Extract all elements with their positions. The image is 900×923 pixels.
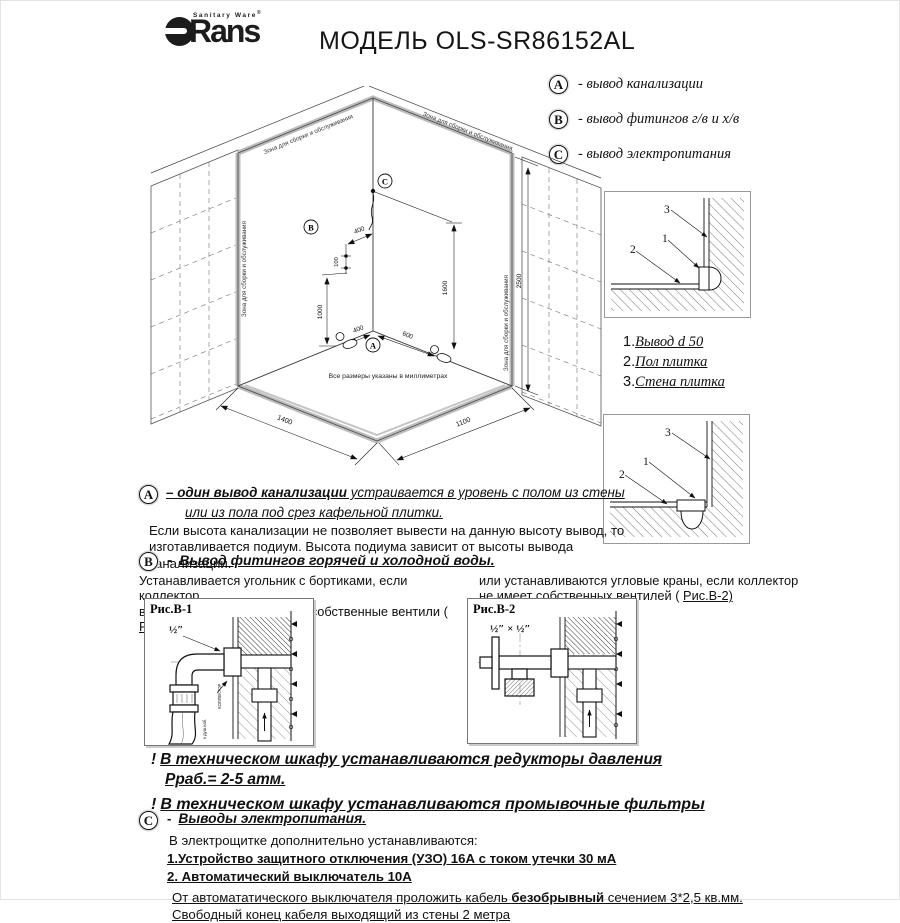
installation-sheet: Rans Sanitary Ware® МОДЕЛЬ OLS-SR86152AL… — [0, 0, 900, 900]
section-c-title: Выводы электропитания. — [178, 811, 366, 828]
fig-b2-reference: Рис.В-2) — [683, 588, 733, 603]
warning-reducers: !В техническом шкафу устанавливаются ред… — [151, 751, 705, 789]
list-item: 1. Вывод d 50 — [623, 334, 725, 351]
figure-b1-caption: Рис.В-1 — [150, 602, 192, 616]
page-title: МОДЕЛЬ OLS-SR86152AL — [319, 27, 635, 56]
units-note: Все размеры указаны в миллиметрах — [329, 373, 448, 380]
section-c-cable-note: От автомататического выключателя проложи… — [172, 890, 819, 906]
size-label: ½″ — [169, 624, 183, 636]
callout-3: 3 — [665, 427, 671, 439]
figure-b2-caption: Рис.В-2 — [473, 602, 515, 616]
registered-mark: ® — [257, 10, 261, 16]
callout-1: 1 — [662, 233, 668, 245]
brand-subtitle: Sanitary Ware® — [193, 10, 261, 19]
callout-2: 2 — [619, 469, 625, 481]
figure-b1-elbow-fitting: Рис.В-1 — [144, 598, 314, 746]
collector-label: КОЛЛЕКТОР — [217, 683, 222, 709]
detail-drain-from-wall: 3 1 2 — [604, 191, 751, 318]
warnings: !В техническом шкафу устанавливаются ред… — [151, 751, 705, 814]
orans-logo-o-icon — [165, 17, 194, 46]
warning-pressure-value: Рраб.= 2-5 атм. — [165, 771, 705, 789]
orans-logo: Rans Sanitary Ware® — [165, 17, 259, 51]
zone-label-right-wall: Зона для сборки и обслуживания — [503, 275, 510, 371]
zone-label-left-wall: Зона для сборки и обслуживания — [241, 221, 248, 317]
hose-label: к душ.каб. — [202, 719, 207, 739]
section-a-line2: или из пола под срез кафельной плитки. — [185, 505, 639, 521]
section-c-item-1: 1.Устройство защитного отключения (УЗО) … — [167, 851, 819, 867]
dim-fitting-height: 1000 — [317, 304, 324, 319]
callout-3: 3 — [664, 204, 670, 216]
section-c-cable-end-note: Свободный конец кабеля выходящий из стен… — [172, 907, 819, 923]
list-item: 2. Пол плитка — [623, 354, 725, 371]
dim-wall-height: 2500 — [516, 273, 523, 288]
callout-1: 1 — [643, 456, 649, 468]
section-a-line1: – один вывод канализации устраивается в … — [166, 485, 625, 501]
dim-power-height: 1600 — [442, 280, 449, 295]
size-label: ½″ × ½″ — [490, 623, 530, 635]
section-b-letter: B — [139, 552, 158, 571]
marker-a: A — [370, 341, 377, 351]
section-b-title: Вывод фитингов горячей и холодной воды. — [179, 552, 494, 568]
callout-2: 2 — [630, 244, 636, 256]
dim-floor-right: 1100 — [455, 417, 472, 429]
flex-hose — [169, 712, 196, 744]
section-c-item-2: 2. Автоматический выключатель 10А — [167, 869, 819, 885]
drain-outlet — [699, 267, 721, 290]
marker-b: B — [308, 223, 314, 233]
section-a-letter: A — [139, 485, 158, 504]
section-c-letter: C — [139, 811, 158, 830]
installation-isometric-diagram: Зона для сборки и обслуживания Зона для … — [126, 86, 636, 486]
section-c: C - Выводы электропитания. В электрощитк… — [139, 811, 819, 923]
dim-floor-left: 1400 — [276, 414, 293, 426]
marker-c: C — [382, 177, 388, 187]
figure-b2-angle-valve: Рис.В-2 ½″ × ½ — [467, 598, 637, 744]
dim-fitting-gap: 100 — [334, 257, 340, 267]
list-item: 3. Стена плитка — [623, 374, 725, 391]
angle-valve — [480, 637, 568, 696]
section-c-intro: В электрощитке дополнительно устанавлива… — [169, 833, 819, 849]
detail-callout-legend: 1. Вывод d 50 2. Пол плитка 3. Стена пли… — [623, 334, 725, 394]
